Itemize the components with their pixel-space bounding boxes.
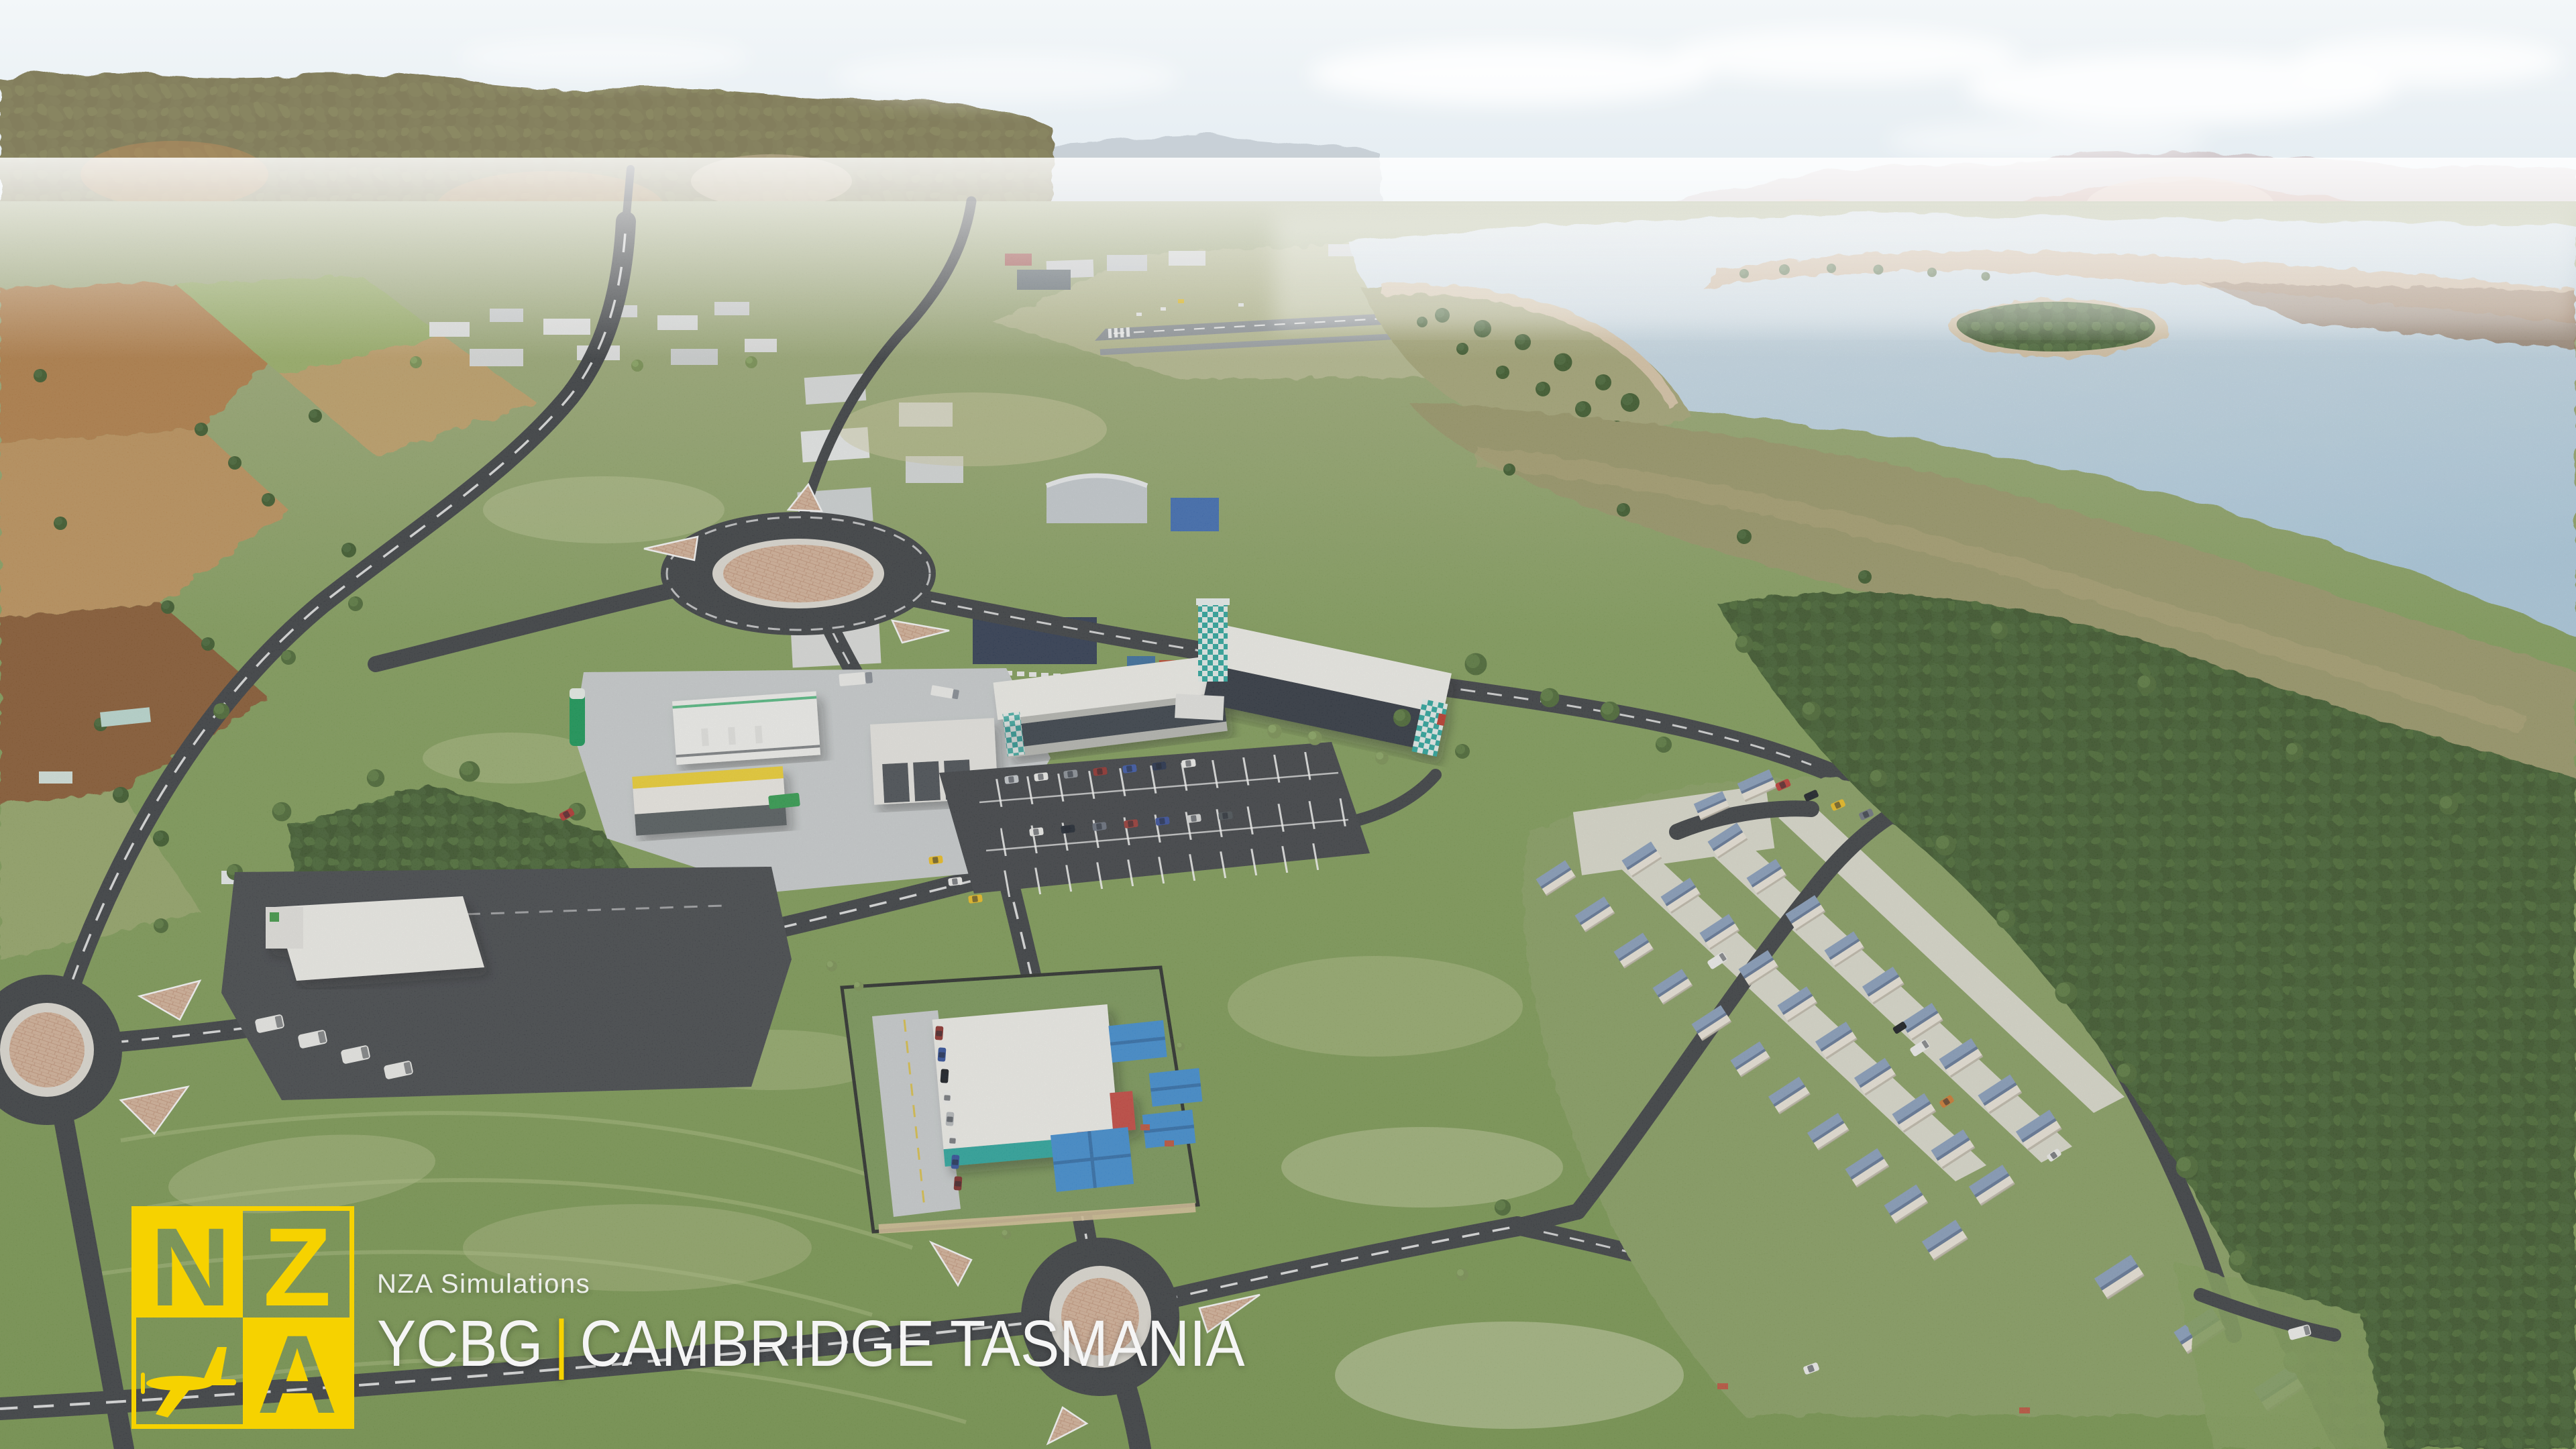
bay-haze [1275, 215, 2576, 329]
nza-logo: N Z A [131, 1206, 354, 1429]
title-block: NZA Simulations YCBG|CAMBRIDGE TASMANIA [377, 1269, 1341, 1381]
brand-name: NZA Simulations [377, 1269, 1341, 1299]
logo-yellow-plate [131, 1206, 354, 1429]
separator-pipe: | [543, 1307, 580, 1380]
scene-aerial-view: EYE SPY GO DIPS [0, 0, 2576, 1449]
grain-light [0, 201, 2576, 1449]
screenshot-flight-sim-aerial: EYE SPY GO DIPS [0, 0, 2576, 1449]
scenery-title: YCBG|CAMBRIDGE TASMANIA [377, 1306, 1245, 1381]
icao-code: YCBG [377, 1307, 543, 1380]
location-name: CAMBRIDGE TASMANIA [580, 1307, 1244, 1380]
